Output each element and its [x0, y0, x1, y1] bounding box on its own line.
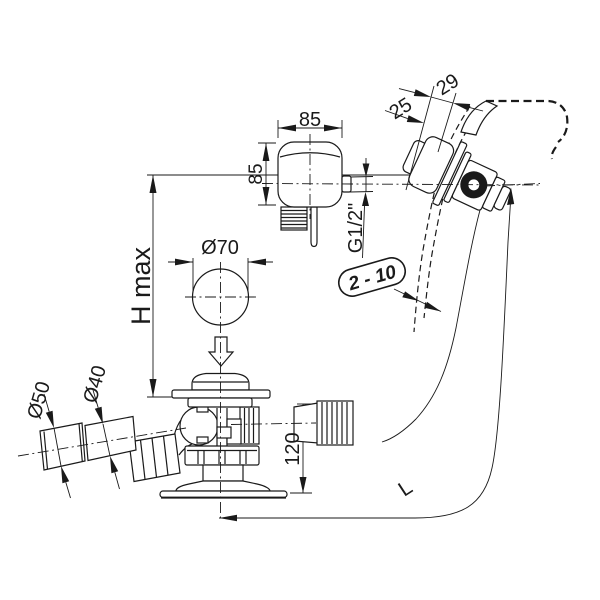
- pipe-d40: [85, 417, 136, 461]
- drain-neck: [203, 465, 243, 481]
- plug-seat: [188, 398, 252, 407]
- thread-size-label: G1/2": [345, 203, 367, 253]
- hose-outer-contour: [382, 210, 480, 442]
- dim-side-height-label: 85: [246, 163, 267, 184]
- pipe-diameter-label: Ø40: [79, 363, 111, 405]
- hose-length-label: L: [394, 476, 416, 502]
- outlet-pipe: [40, 408, 197, 482]
- plug-flange: [172, 390, 270, 398]
- castle-nut: [185, 446, 259, 465]
- insert-direction-arrow-icon: [209, 337, 233, 366]
- hose-nut-adapter: [317, 401, 353, 445]
- plug-diameter-label: Ø70: [201, 237, 239, 259]
- dim-29-label: 29: [433, 70, 464, 100]
- arrow-85-right: [324, 125, 342, 132]
- tub-rim-dashed: [486, 101, 567, 159]
- pull-rod: [311, 207, 317, 247]
- height-max-label: H max: [126, 247, 156, 326]
- technical-drawing-bath-waste-overflow: 2 - 10 85 85 H max Ø70 G1/2" 29 25 Ø50 Ø…: [0, 0, 600, 600]
- base-plate: [160, 491, 287, 498]
- cable-junction: [217, 427, 231, 438]
- body-tab-bottom: [197, 437, 208, 443]
- drain-base: [176, 481, 270, 491]
- dim-outlet-height-label: 120: [282, 432, 304, 465]
- plug-side-view: [172, 374, 270, 408]
- hose-nut-drain: [240, 407, 259, 444]
- thread-boss: [281, 207, 307, 230]
- overflow-assembly: [394, 101, 567, 231]
- dim-top-width-label: 85: [299, 109, 321, 131]
- knob-assembly: [278, 142, 351, 247]
- drawing-canvas: 2 - 10 85 85 H max Ø70 G1/2" 29 25 Ø50 Ø…: [0, 0, 600, 600]
- arrow-85-left: [278, 125, 296, 132]
- drain-assembly: [160, 374, 287, 498]
- tub-wall-section: [414, 106, 478, 332]
